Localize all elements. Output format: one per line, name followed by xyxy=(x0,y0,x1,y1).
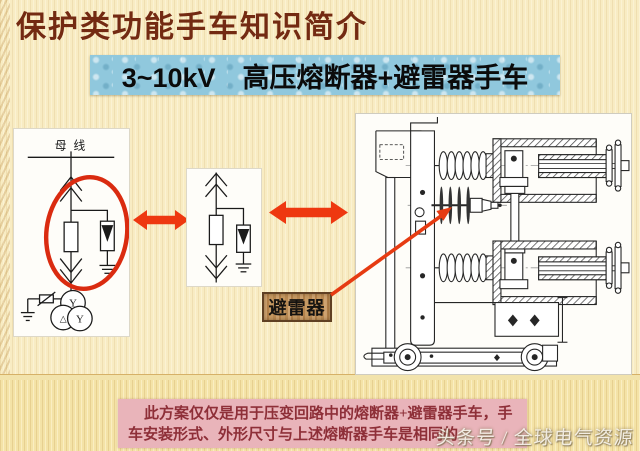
double-arrow-icon xyxy=(133,209,189,231)
red-highlight-ellipse xyxy=(40,172,129,293)
fuse-arrester-circuit-lines xyxy=(206,172,252,282)
frame-column xyxy=(376,117,438,358)
watermark: 头条号 / 全球电气资源 xyxy=(435,423,635,450)
transformer-winding-bottom-left: △ xyxy=(60,313,67,323)
arrester-callout-text: 避雷器 xyxy=(269,294,326,320)
page-title: 保护类功能手车知识简介 xyxy=(16,2,616,46)
busbar-label: 母 线 xyxy=(55,138,87,152)
lower-bushing-bellows xyxy=(434,254,494,282)
fuse-arrester-schematic xyxy=(187,169,261,286)
busbar-schematic-panel: 母 线 xyxy=(13,128,130,337)
upper-bushing-bellows xyxy=(434,152,494,180)
transformer-winding-top: Y xyxy=(69,298,77,310)
fuse-arrester-schematic-panel xyxy=(186,168,262,287)
banner-text: 3~10kV 高压熔断器+避雷器手车 xyxy=(122,56,529,95)
support-box xyxy=(434,298,567,343)
technical-drawing xyxy=(356,114,631,374)
slide: 保护类功能手车知识简介 3~10kV 高压熔断器+避雷器手车 母 线 xyxy=(0,0,640,451)
chassis-wheels xyxy=(364,344,558,371)
transformer-winding-bottom-right: Y xyxy=(76,313,84,325)
note-line-1: 此方案仅仅是用于压变回路中的熔断器+避雷器手车，手 xyxy=(118,404,527,425)
technical-drawing-panel xyxy=(355,113,632,375)
busbar-schematic: 母 线 xyxy=(14,129,129,336)
double-arrow-icon xyxy=(269,200,348,225)
arrester-callout-label: 避雷器 xyxy=(262,292,332,322)
surge-arrester xyxy=(431,186,501,224)
banner: 3~10kV 高压熔断器+避雷器手车 xyxy=(90,55,560,95)
